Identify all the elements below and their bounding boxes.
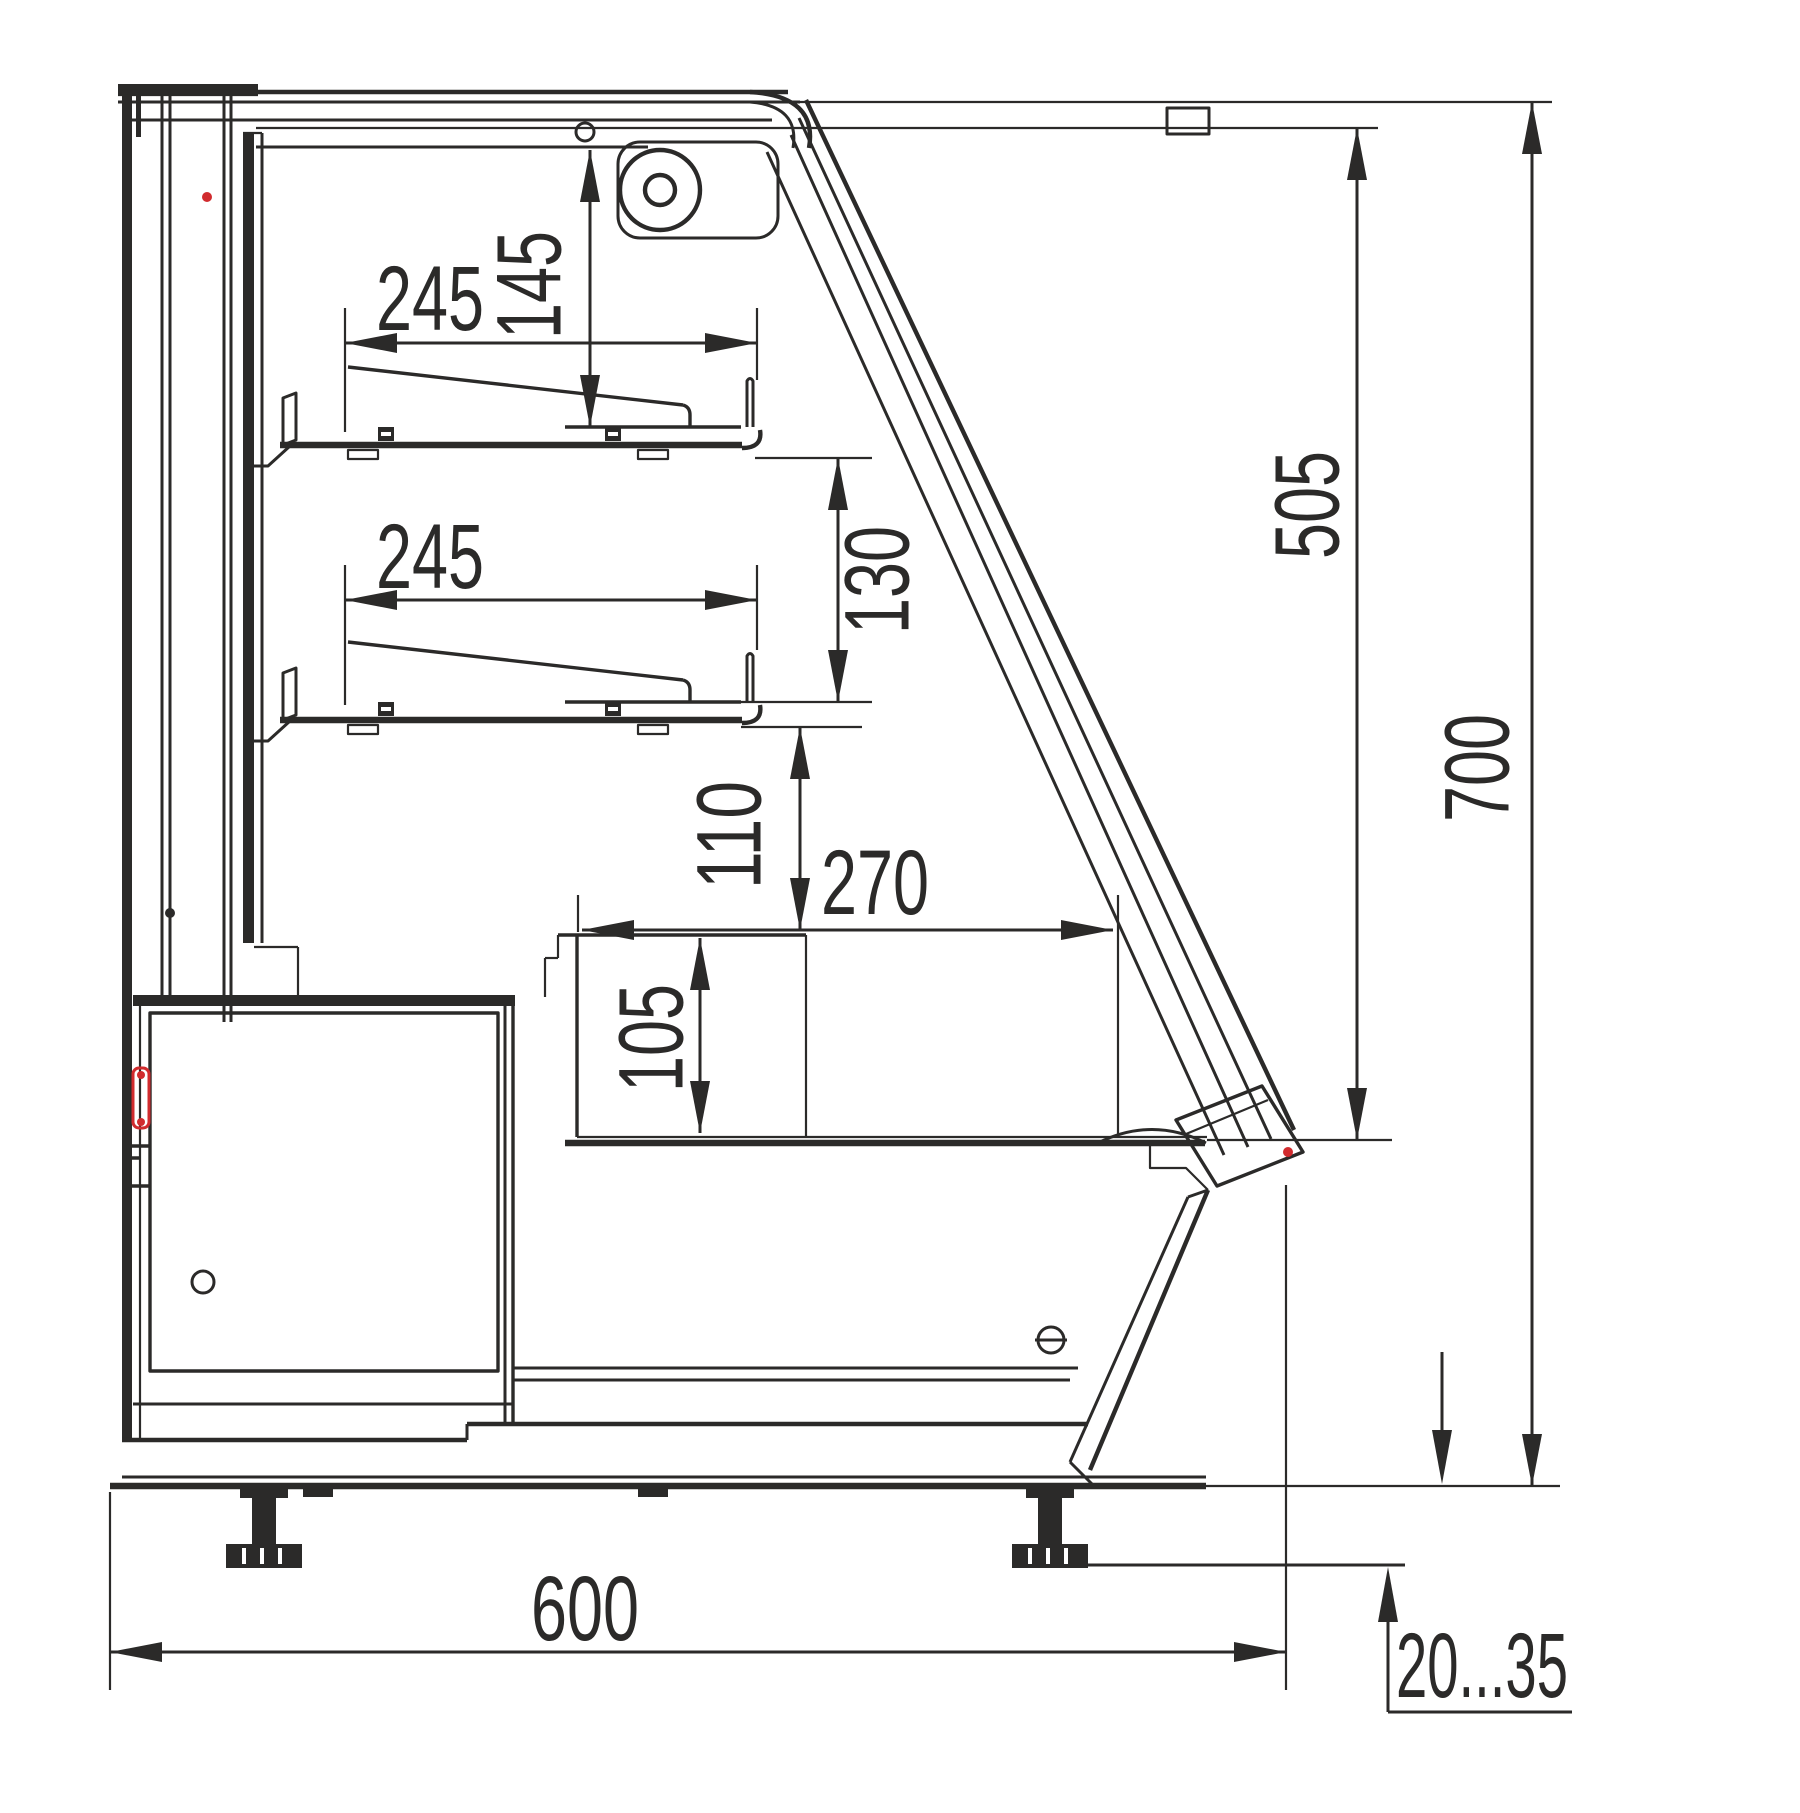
dim-label-overall-depth: 600 (531, 1558, 639, 1660)
dimension-lower-shelf-width: 245 (345, 506, 757, 705)
front-panel (1035, 1190, 1208, 1486)
canopy-clip (1167, 108, 1209, 134)
dim-label-lower-shelf-width: 245 (376, 506, 484, 608)
dim-label-well-opening-depth: 270 (821, 832, 929, 934)
compartment-door (150, 1013, 498, 1371)
upper-shelf (254, 367, 760, 466)
dim-label-foot-adjustment: 20...35 (1396, 1615, 1568, 1717)
red-indicator-dot (202, 192, 212, 202)
dim-label-overall-height: 700 (1426, 714, 1528, 822)
dimension-shelf-spacing: 130 (741, 458, 928, 702)
machine-compartment (128, 995, 515, 1440)
dim-label-shelf-spacing: 130 (826, 526, 928, 634)
dimension-well-depth: 105 (600, 938, 710, 1133)
lower-shelf (254, 642, 760, 741)
dimension-overall-depth: 600 (110, 1185, 1286, 1690)
canopy-screw (576, 123, 594, 141)
left-adjustable-foot (226, 1486, 302, 1568)
dimension-overall-height: 700 (1426, 102, 1542, 1486)
post-rivet (165, 908, 175, 918)
display-case-section-drawing: 245 145 245 130 110 (0, 0, 1800, 1813)
shelf-bracket (283, 393, 296, 445)
door-hole (192, 1271, 214, 1293)
pulley-roller-icon (620, 150, 700, 230)
dimension-glass-to-deck-height: 505 (1256, 128, 1367, 1140)
dim-label-well-depth: 105 (600, 984, 702, 1092)
base-platform (110, 1424, 1560, 1497)
shelf-front-prong (747, 654, 753, 703)
night-blind-pulley (618, 142, 778, 238)
shelf-front-prong (747, 379, 753, 428)
base-bolt-tab (638, 1486, 668, 1497)
dim-label-canopy-to-upper-shelf: 145 (478, 231, 580, 339)
dim-label-glass-to-deck-height: 505 (1256, 451, 1358, 559)
shelf-bracket (283, 668, 296, 720)
base-bolt-tab (303, 1486, 333, 1497)
dim-label-upper-shelf-width: 245 (376, 248, 484, 350)
right-adjustable-foot (1012, 1486, 1088, 1568)
drawing-page: 245 145 245 130 110 (0, 0, 1800, 1813)
clamp-red-dot (1283, 1147, 1293, 1157)
canopy (118, 92, 1552, 148)
dimension-foot-adjustment: 20...35 (1378, 1352, 1572, 1717)
dim-label-shelf-to-well-clearance: 110 (678, 781, 780, 889)
